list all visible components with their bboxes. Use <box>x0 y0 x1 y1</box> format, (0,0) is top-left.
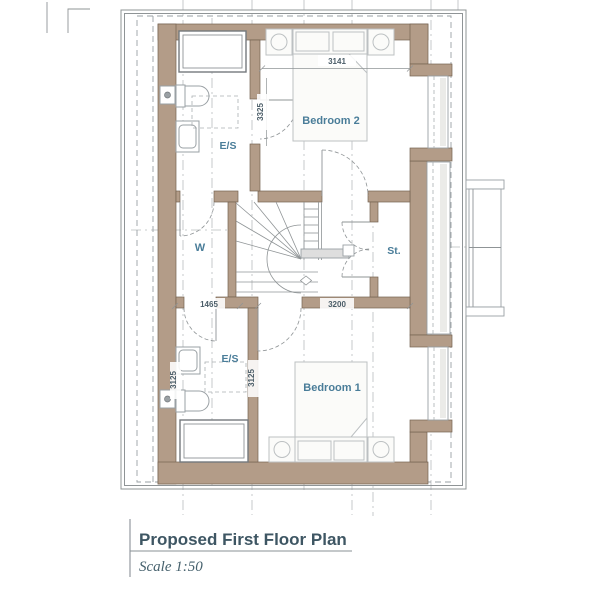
bedroom2-label: Bedroom 2 <box>302 115 359 127</box>
staircase <box>236 202 354 293</box>
floor-plan-drawing: 3141 3325 1465 3200 3125 3125 Bedroom 2 … <box>0 0 600 600</box>
dim-3141: 3141 <box>328 57 346 66</box>
bedroom1-label: Bedroom 1 <box>303 382 360 394</box>
reference-marks <box>47 2 90 33</box>
bedroom1-window <box>428 347 448 420</box>
shower-icon <box>180 420 248 462</box>
bedroom1-furniture <box>269 362 394 462</box>
shower-icon <box>179 31 246 72</box>
dimension-ensuite1-depth: 3125 <box>169 362 181 399</box>
dim-3325: 3325 <box>256 103 265 121</box>
bed-icon <box>295 362 367 462</box>
wardrobe-label: W <box>195 242 206 254</box>
ensuite2-label: E/S <box>220 140 237 152</box>
bedside-table-icon <box>266 29 292 55</box>
dimension-bedroom1-depth: 3125 <box>247 360 259 397</box>
store-label: St. <box>387 245 401 257</box>
drawing-title: Proposed First Floor Plan <box>139 530 347 549</box>
title-block: Proposed First Floor Plan Scale 1:50 <box>130 519 352 577</box>
bedside-table-icon <box>269 437 295 462</box>
bedside-table-icon <box>368 29 394 55</box>
sink-icon <box>176 121 199 152</box>
door-bedroom2 <box>322 150 368 196</box>
dim-3200: 3200 <box>328 300 346 309</box>
bay-window <box>466 180 504 316</box>
handrail <box>301 249 349 258</box>
floor-plan-sheet: 3141 3325 1465 3200 3125 3125 Bedroom 2 … <box>0 0 600 600</box>
dim-3125-left: 3125 <box>169 371 178 389</box>
door-bedroom1 <box>258 308 301 351</box>
stair-recess-window <box>427 162 450 334</box>
bedside-table-icon <box>368 437 394 462</box>
dim-3125: 3125 <box>247 369 256 387</box>
door-ensuite1 <box>184 308 216 341</box>
drawing-scale: Scale 1:50 <box>139 559 203 575</box>
dim-1465: 1465 <box>200 300 218 309</box>
ensuite1-label: E/S <box>222 353 239 365</box>
door-wardrobe <box>180 202 214 236</box>
bedroom2-window <box>428 76 448 148</box>
